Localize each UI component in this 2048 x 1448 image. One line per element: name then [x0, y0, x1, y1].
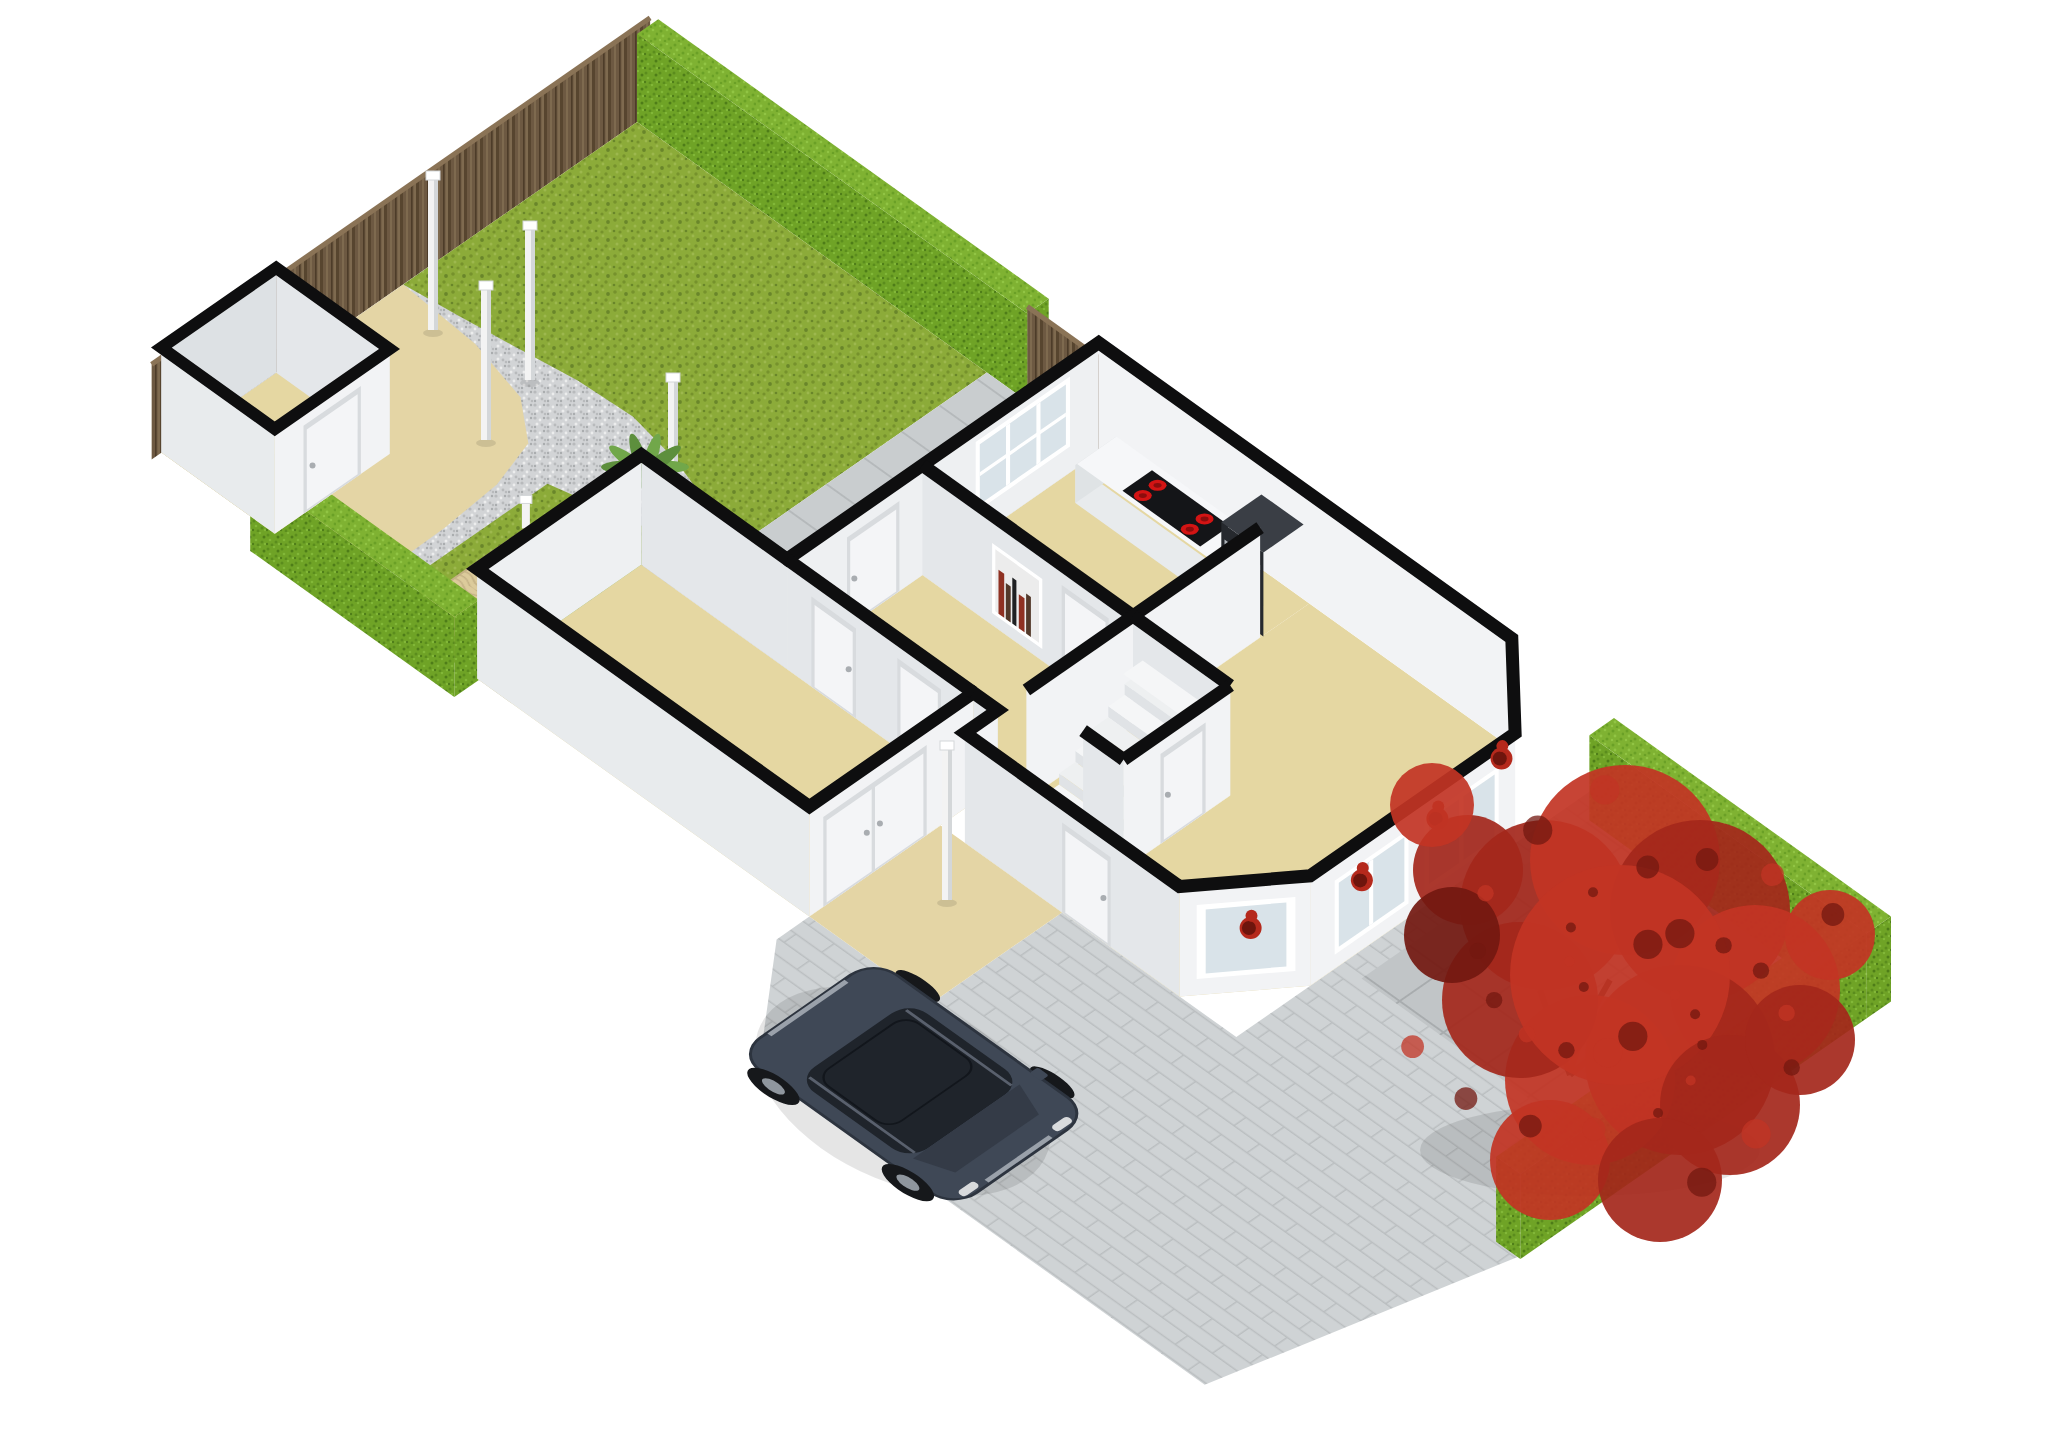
front-lamp-post-cap — [940, 741, 954, 750]
lamp-post-shade — [487, 290, 491, 440]
lamp-post-cap — [523, 221, 537, 230]
tree-leaf-cluster — [1653, 1108, 1663, 1118]
double-door-handle — [864, 830, 870, 836]
tree-leaf-cluster — [1593, 1038, 1622, 1067]
tree-canopy — [1490, 1100, 1610, 1220]
floorplan-3d-render — [0, 0, 2048, 1448]
tree-leaf-cluster — [1665, 919, 1694, 948]
burner-core — [1139, 493, 1147, 498]
tree-leaf-cluster — [1687, 1168, 1716, 1197]
lamp-post-shade — [531, 230, 535, 380]
burner-core — [1186, 527, 1194, 532]
tree-leaf-cluster — [1618, 1022, 1647, 1051]
lamp-post-cap — [666, 373, 680, 382]
tree-leaf-cluster — [1564, 956, 1574, 966]
lamp-post-shadow — [520, 379, 540, 387]
tree-leaf-cluster — [1566, 922, 1576, 932]
hedge-end — [454, 600, 479, 697]
indoor-plant — [1496, 740, 1508, 752]
tree-leaf-cluster — [1477, 885, 1493, 901]
book — [1006, 583, 1011, 623]
tree-leaf-cluster — [1455, 1087, 1478, 1110]
tree-canopy — [1390, 763, 1474, 847]
burner-core — [1201, 517, 1209, 522]
front-door-handle — [1100, 895, 1106, 901]
indoor-plant — [1353, 873, 1367, 887]
tree-leaf-cluster — [1783, 1059, 1799, 1075]
shed-door-handle — [310, 463, 316, 469]
tree-leaf-cluster — [1579, 982, 1589, 992]
tree-leaf-cluster — [1753, 962, 1769, 978]
tree-leaf-cluster — [1741, 1119, 1770, 1148]
tree-leaf-cluster — [1670, 990, 1680, 1000]
ornamental-red-tree — [1390, 763, 1875, 1242]
tree-leaf-cluster — [1715, 937, 1731, 953]
tree-leaf-cluster — [1583, 1118, 1606, 1141]
book — [1019, 594, 1025, 632]
tree-leaf-cluster — [1558, 1042, 1574, 1058]
tree-leaf-cluster — [1696, 848, 1719, 871]
double-door-handle — [877, 821, 883, 827]
tree-leaf-cluster — [1401, 1035, 1424, 1058]
tree-leaf-cluster — [1523, 816, 1552, 845]
tree-leaf-cluster — [1519, 1026, 1535, 1042]
stair-side-door-handle — [1165, 792, 1171, 798]
floorplan-canvas — [0, 0, 2048, 1448]
bay-window-mullion — [1369, 859, 1373, 926]
tree-leaf-cluster — [1686, 1076, 1696, 1086]
tree-leaf-cluster — [1633, 930, 1662, 959]
lamp-post-shadow — [423, 329, 443, 337]
lamp-post-cap — [426, 171, 440, 180]
tree-leaf-cluster — [1519, 1115, 1542, 1138]
tree-leaf-cluster — [1690, 1009, 1700, 1019]
tree-leaf-cluster — [1470, 943, 1486, 959]
storage-door-handle — [846, 666, 852, 672]
indoor-plant — [1493, 751, 1507, 765]
indoor-plant — [1357, 862, 1369, 874]
tree-canopy — [1745, 985, 1855, 1095]
front-lamp-post-shade — [948, 750, 952, 900]
book — [1026, 593, 1031, 637]
lamp-post-cap — [479, 281, 493, 290]
book — [999, 570, 1005, 618]
tree-canopy — [1404, 887, 1500, 983]
tree-leaf-cluster — [1486, 992, 1502, 1008]
front-lamp-post-shadow — [937, 899, 957, 907]
tree-leaf-cluster — [1697, 1040, 1707, 1050]
tree-leaf-cluster — [1636, 856, 1659, 879]
tree-leaf-cluster — [1590, 775, 1619, 804]
tree-leaf-cluster — [1761, 863, 1784, 886]
sandbox-post-cap — [520, 495, 532, 503]
tree-leaf-cluster — [1588, 887, 1598, 897]
terrace-door-handle — [851, 575, 857, 581]
lamp-post-shade — [434, 180, 438, 330]
tree-leaf-cluster — [1821, 903, 1844, 926]
tree-leaf-cluster — [1778, 1005, 1794, 1021]
indoor-plant — [1242, 921, 1256, 935]
sandbox-corner-post — [522, 502, 530, 528]
lamp-post-shadow — [476, 439, 496, 447]
burner-core — [1154, 483, 1162, 488]
indoor-plant — [1245, 910, 1257, 922]
book — [1012, 578, 1016, 627]
